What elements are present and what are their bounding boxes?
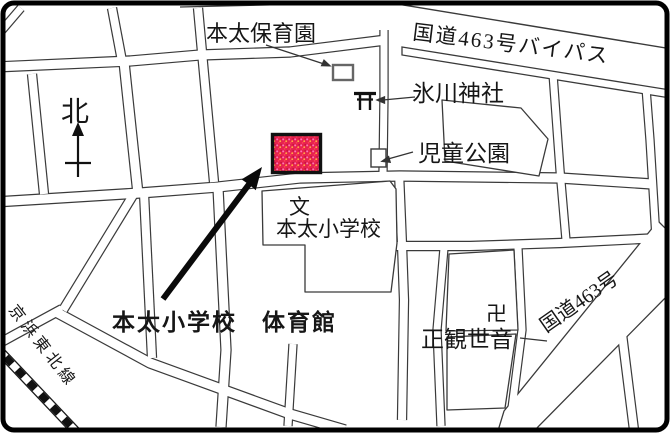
label-elementary-school: 本太小学校 [276,217,381,241]
map-content: 本太保育園 国道463号バイパス 北 氷川神社 児童公園 文 本太小学校 本太小… [0,0,670,433]
label-shrine: 氷川神社 [412,81,504,106]
label-north: 北 [61,97,89,128]
gym-highlight-marker [273,135,321,173]
label-gym: 本太小学校 体育館 [112,309,337,335]
label-temple: 正観世音 [421,327,513,352]
label-school-symbol: 文 [289,195,310,219]
label-children-park: 児童公園 [418,141,510,166]
nursery-building-square [333,65,353,80]
label-nursery: 本太保育園 [206,21,316,46]
map-container: 本太保育園 国道463号バイパス 北 氷川神社 児童公園 文 本太小学校 本太小… [0,0,670,433]
park-square [371,149,386,167]
temple-block [446,250,518,331]
map-svg: 本太保育園 国道463号バイパス 北 氷川神社 児童公園 文 本太小学校 本太小… [0,0,670,433]
label-manji-icon: 卍 [486,302,507,326]
